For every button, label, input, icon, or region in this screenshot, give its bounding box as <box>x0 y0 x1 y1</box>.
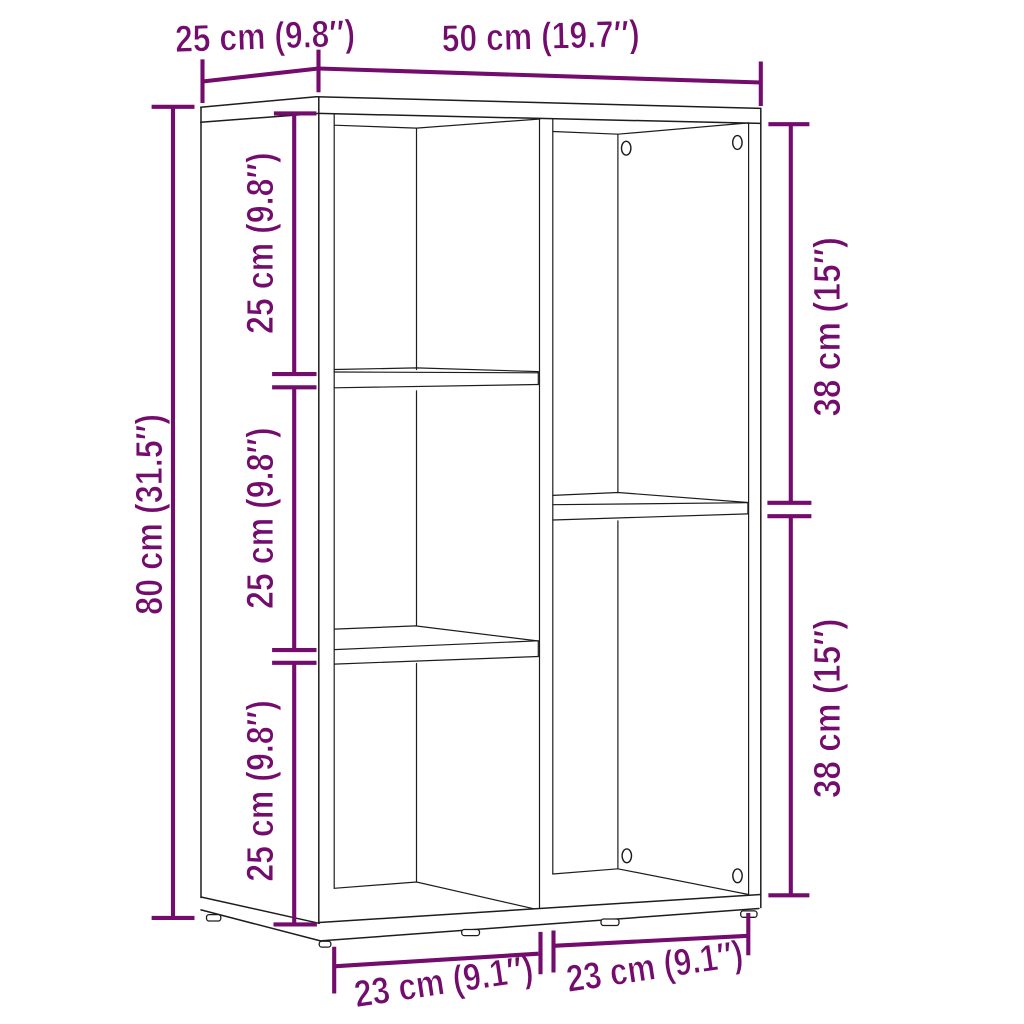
svg-text:25 cm (9.8″): 25 cm (9.8″) <box>174 12 356 60</box>
svg-text:80 cm (31.5″): 80 cm (31.5″) <box>129 414 171 615</box>
svg-text:25 cm (9.8″): 25 cm (9.8″) <box>240 427 282 609</box>
svg-text:38 cm (15″): 38 cm (15″) <box>806 619 848 799</box>
svg-text:50 cm (19.7″): 50 cm (19.7″) <box>441 13 640 60</box>
svg-text:38 cm (15″): 38 cm (15″) <box>806 237 848 417</box>
svg-text:25 cm (9.8″): 25 cm (9.8″) <box>240 152 282 334</box>
svg-text:25 cm (9.8″): 25 cm (9.8″) <box>240 700 282 882</box>
